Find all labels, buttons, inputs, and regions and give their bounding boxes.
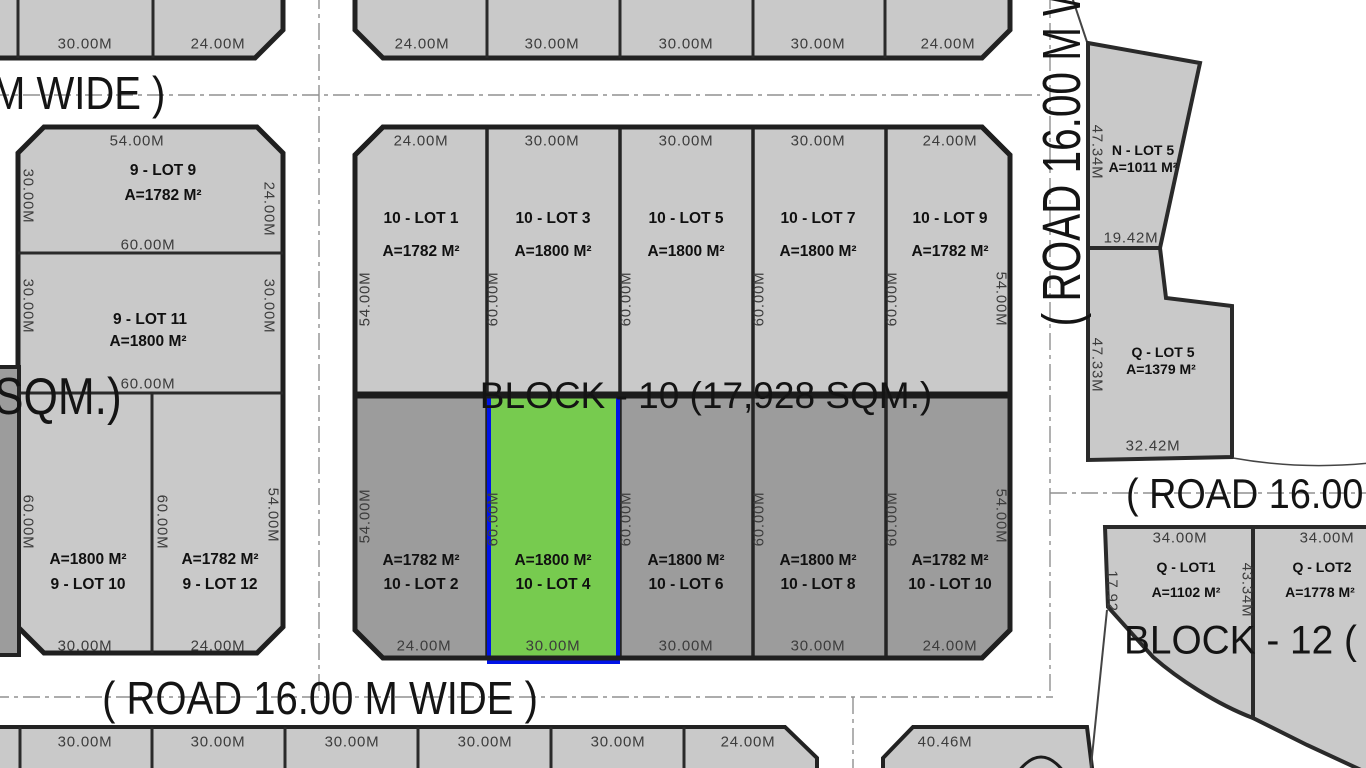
road-label-bottom: ( ROAD 16.00 M WIDE ) xyxy=(102,671,538,725)
dim-label: 30.00M xyxy=(20,169,37,224)
lot-10-4-highlighted-region[interactable] xyxy=(489,396,618,662)
dim-label: 30.00M xyxy=(526,638,581,655)
dim-label: 54.00M xyxy=(357,489,374,544)
dim-label: 32.42M xyxy=(1126,438,1181,455)
dim-label: 30.00M xyxy=(525,36,580,53)
q-lot1-name: Q - LOT1 xyxy=(1156,559,1215,575)
lot-9-11-area: A=1800 M² xyxy=(109,333,186,351)
lot-9-12-name: 9 - LOT 12 xyxy=(183,576,258,594)
dim-label: 19.42M xyxy=(1104,230,1159,247)
dim-label: 30.00M xyxy=(191,734,246,751)
dim-label: 24.00M xyxy=(261,182,278,237)
q-lot2-name: Q - LOT2 xyxy=(1292,559,1351,575)
dim-label: 30.00M xyxy=(58,36,113,53)
lot-9-11-name: 9 - LOT 11 xyxy=(113,311,187,329)
dim-label: 60.00M xyxy=(121,376,176,393)
dim-label: 24.00M xyxy=(921,36,976,53)
lot-10-9-name: 10 - LOT 9 xyxy=(913,210,988,228)
lot-10-5-area: A=1800 M² xyxy=(647,243,724,261)
lot-10-1-name: 10 - LOT 1 xyxy=(384,210,459,228)
dim-label: 24.00M xyxy=(923,638,978,655)
dim-label: 30.00M xyxy=(20,279,37,334)
dim-label: 54.00M xyxy=(265,488,282,543)
dim-label: 30.00M xyxy=(659,36,714,53)
dim-label: 24.00M xyxy=(395,36,450,53)
dim-label: 30.00M xyxy=(458,734,513,751)
road-label-top: M WIDE ) xyxy=(0,66,165,120)
dim-label: 60.00M xyxy=(20,495,37,550)
dim-label: 60.00M xyxy=(154,495,171,550)
lot-9-10-area: A=1800 M² xyxy=(49,551,126,569)
block-10-lower-half xyxy=(355,395,1010,658)
dim-label: 30.00M xyxy=(58,734,113,751)
lot-9-10-name: 9 - LOT 10 xyxy=(51,576,126,594)
q-lot-5-name: Q - LOT 5 xyxy=(1132,344,1195,360)
dim-label: 24.00M xyxy=(721,734,776,751)
dim-label: 34.00M xyxy=(1153,530,1208,547)
dim-label: 60.00M xyxy=(485,272,502,327)
dim-label: 54.00M xyxy=(993,489,1010,544)
dim-label: 43.34M xyxy=(1239,563,1256,618)
lot-10-6-name: 10 - LOT 6 xyxy=(649,576,724,594)
lot-10-1-area: A=1782 M² xyxy=(382,243,459,261)
dim-label: 60.00M xyxy=(618,272,635,327)
lot-10-4-area: A=1800 M² xyxy=(514,552,591,570)
lot-10-7-area: A=1800 M² xyxy=(779,243,856,261)
dim-label: 30.00M xyxy=(261,279,278,334)
boundary-line-right xyxy=(1233,458,1366,466)
dim-label: 17.92 xyxy=(1104,570,1121,612)
dim-label: 60.00M xyxy=(884,492,901,547)
bottom-left-strip-block xyxy=(0,727,817,768)
dim-label: 34.00M xyxy=(1300,530,1355,547)
dim-label: 60.00M xyxy=(618,492,635,547)
dim-label: 24.00M xyxy=(191,638,246,655)
plat-map: 30.00M 24.00M 24.00M 30.00M 30.00M 30.00… xyxy=(0,0,1366,768)
dim-label: 30.00M xyxy=(659,133,714,150)
lot-10-4-name: 10 - LOT 4 xyxy=(516,576,591,594)
lot-10-8-area: A=1800 M² xyxy=(779,552,856,570)
lot-10-6-area: A=1800 M² xyxy=(647,552,724,570)
dim-label: 60.00M xyxy=(884,272,901,327)
dim-label: 30.00M xyxy=(525,133,580,150)
dim-label: 54.00M xyxy=(110,133,165,150)
lot-10-2-area: A=1782 M² xyxy=(382,552,459,570)
road-label-right-vertical: ( ROAD 16.00 M W xyxy=(1031,0,1093,326)
lot-10-10-area: A=1782 M² xyxy=(911,552,988,570)
dim-label: 40.46M xyxy=(918,734,973,751)
lot-9-9-name: 9 - LOT 9 xyxy=(130,162,196,180)
q-lot1-area: A=1102 M² xyxy=(1152,584,1221,600)
dim-label: 30.00M xyxy=(791,36,846,53)
dim-label: 24.00M xyxy=(191,36,246,53)
block-9-partial-title: SQM.) xyxy=(0,367,122,427)
dim-label: 60.00M xyxy=(751,492,768,547)
dim-label: 60.00M xyxy=(485,492,502,547)
dim-label: 30.00M xyxy=(591,734,646,751)
n-lot-5-name: N - LOT 5 xyxy=(1112,142,1174,158)
dim-label: 24.00M xyxy=(397,638,452,655)
lot-10-10-name: 10 - LOT 10 xyxy=(908,576,992,594)
lot-10-5-name: 10 - LOT 5 xyxy=(649,210,724,228)
dim-label: 30.00M xyxy=(791,638,846,655)
lot-10-8-name: 10 - LOT 8 xyxy=(781,576,856,594)
dim-label: 47.33M xyxy=(1089,338,1106,393)
q-lot2-area: A=1778 M² xyxy=(1285,584,1355,600)
dim-label: 54.00M xyxy=(993,272,1010,327)
lot-9-9-area: A=1782 M² xyxy=(124,187,201,205)
lot-10-9-area: A=1782 M² xyxy=(911,243,988,261)
n-lot-5-area: A=1011 M² xyxy=(1109,159,1178,175)
lot-10-3-name: 10 - LOT 3 xyxy=(516,210,591,228)
dim-label: 60.00M xyxy=(121,237,176,254)
block-12-boundary-line xyxy=(1090,610,1107,768)
dim-label: 24.00M xyxy=(923,133,978,150)
dim-label: 30.00M xyxy=(58,638,113,655)
lot-10-2-name: 10 - LOT 2 xyxy=(384,576,459,594)
q-lot-5-area: A=1379 M² xyxy=(1126,361,1196,377)
dim-label: 60.00M xyxy=(751,272,768,327)
lot-9-12-area: A=1782 M² xyxy=(181,551,258,569)
lot-10-7-name: 10 - LOT 7 xyxy=(781,210,856,228)
dim-label: 30.00M xyxy=(325,734,380,751)
dim-label: 30.00M xyxy=(659,638,714,655)
dim-label: 24.00M xyxy=(394,133,449,150)
lot-10-3-area: A=1800 M² xyxy=(514,243,591,261)
road-label-right-horizontal: ( ROAD 16.00 xyxy=(1126,470,1363,518)
bottom-right-strip-block xyxy=(883,727,1093,768)
block-10-title: BLOCK - 10 (17,928 SQM.) xyxy=(480,375,932,417)
dim-label: 30.00M xyxy=(791,133,846,150)
block-12-title: BLOCK - 12 ( xyxy=(1124,619,1357,664)
dim-label: 54.00M xyxy=(357,272,374,327)
